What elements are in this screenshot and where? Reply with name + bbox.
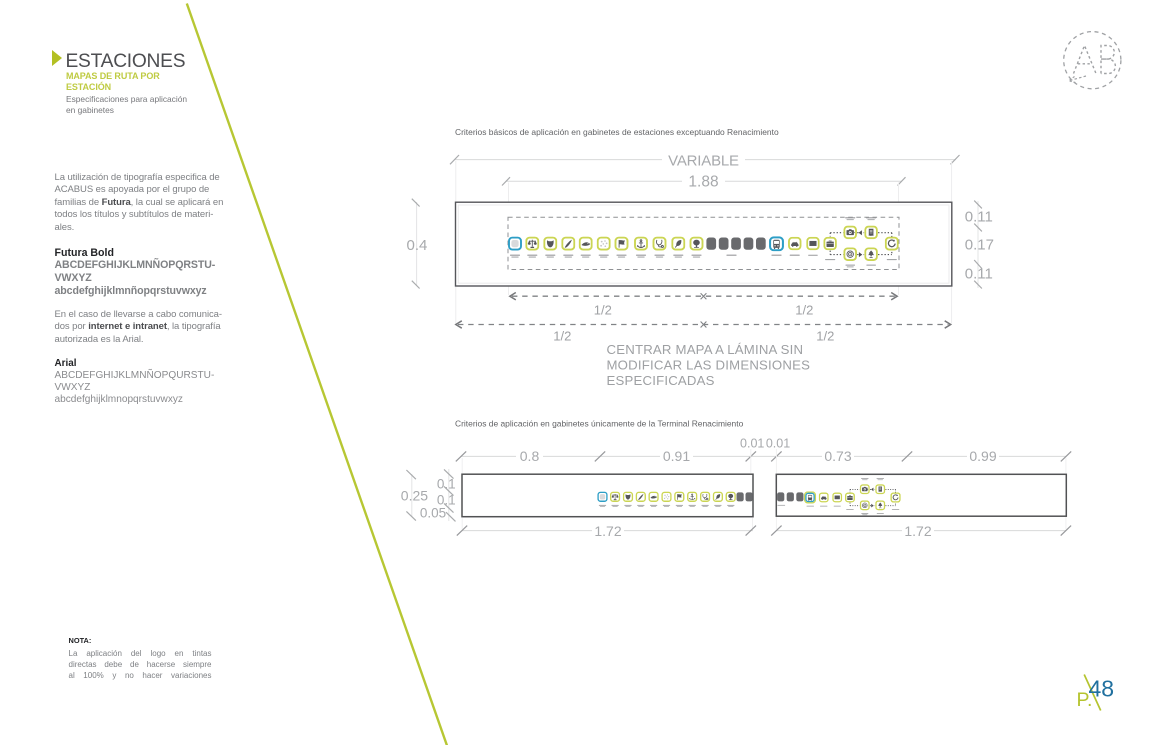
svg-text:0.17: 0.17 [965,237,994,254]
svg-text:1.72: 1.72 [904,523,931,539]
svg-text:0.4: 0.4 [407,237,428,254]
svg-text:1.72: 1.72 [594,523,621,539]
svg-text:ESPECIFICADAS: ESPECIFICADAS [607,373,715,388]
svg-text:1/2: 1/2 [795,302,813,317]
svg-text:P.: P. [1077,689,1093,711]
svg-text:VARIABLE: VARIABLE [668,152,739,169]
svg-text:1/2: 1/2 [553,328,571,343]
svg-text:Criterios de aplicación en gab: Criterios de aplicación en gabinetes úni… [455,419,744,429]
svg-text:0.1: 0.1 [437,476,456,491]
svg-text:0.73: 0.73 [824,448,851,464]
svg-text:Criterios básicos de aplicació: Criterios básicos de aplicación en gabin… [455,127,779,137]
svg-text:MODIFICAR LAS DIMENSIONES: MODIFICAR LAS DIMENSIONES [607,357,811,372]
svg-text:1.88: 1.88 [688,173,718,190]
svg-text:0.11: 0.11 [965,209,993,226]
svg-text:1/2: 1/2 [816,328,834,343]
svg-text:0.99: 0.99 [969,448,996,464]
svg-text:0.11: 0.11 [965,266,993,283]
svg-text:0.8: 0.8 [520,448,540,464]
svg-text:0.05: 0.05 [420,505,446,520]
svg-text:1/2: 1/2 [594,302,612,317]
svg-text:0.25: 0.25 [401,488,428,504]
svg-text:0.01: 0.01 [740,437,764,451]
svg-text:0.91: 0.91 [663,448,690,464]
svg-text:0.01: 0.01 [766,437,790,451]
svg-text:CENTRAR MAPA A LÁMINA SIN: CENTRAR MAPA A LÁMINA SIN [607,342,804,357]
